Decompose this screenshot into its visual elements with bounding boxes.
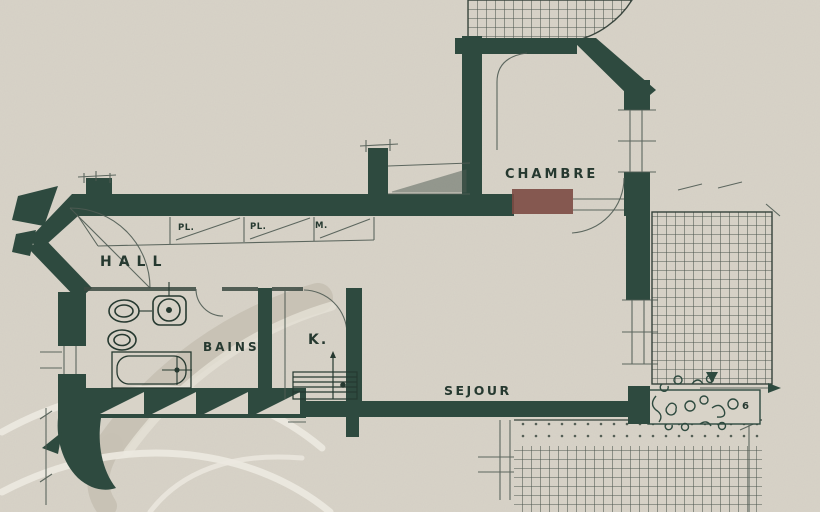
room-label-chambre: CHAMBRE xyxy=(505,167,598,182)
wall-chambre-east-lower xyxy=(624,172,650,216)
wall-chambre-south xyxy=(482,194,514,216)
wall-chimney-notch xyxy=(86,178,112,196)
wall-sejour-east xyxy=(626,216,650,300)
floorplan-svg: HALL BAINS K. SEJOUR CHAMBRE PL. PL. M. … xyxy=(0,0,820,512)
room-label-sejour: SEJOUR xyxy=(444,383,512,398)
wall-kitchen-east xyxy=(346,288,362,401)
red-radiator-block xyxy=(512,189,573,214)
terrace-note-label: 6 xyxy=(742,401,749,412)
closet-label-3: M. xyxy=(315,221,328,231)
closet-label-2: PL. xyxy=(250,222,266,232)
room-label-bains: BAINS xyxy=(203,340,260,354)
wall-chambre-east-upper xyxy=(624,80,650,110)
terrace-grid-right xyxy=(652,212,772,384)
wall-stub-interior xyxy=(368,148,388,194)
wall-stub-south xyxy=(346,417,359,437)
terrace-grid-bottom xyxy=(514,446,762,512)
wall-bains-west-lower xyxy=(58,374,86,418)
wall-balcony-south xyxy=(455,38,577,54)
balcony-triangle-hatch xyxy=(86,388,306,418)
floorplan-page: HALL BAINS K. SEJOUR CHAMBRE PL. PL. M. … xyxy=(0,0,820,512)
room-label-hall: HALL xyxy=(100,254,168,270)
room-label-kitchen: K. xyxy=(308,332,328,348)
wall-bains-kitchen-divider xyxy=(258,288,272,390)
wall-sejour-south xyxy=(302,401,632,417)
wall-bains-west-upper xyxy=(58,292,86,346)
closet-label-1: PL. xyxy=(178,223,194,233)
